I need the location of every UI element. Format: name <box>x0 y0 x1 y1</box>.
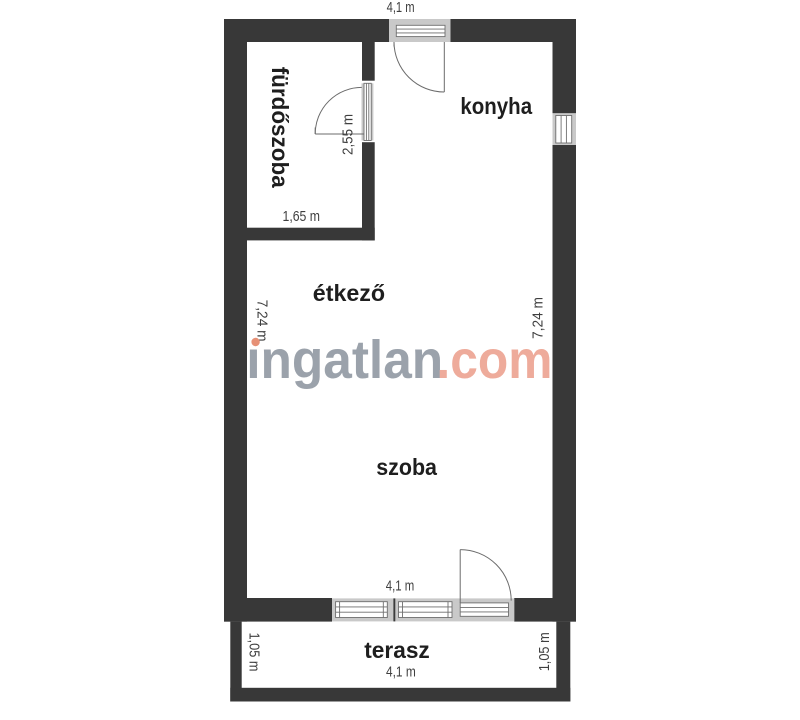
svg-text:1,05 m: 1,05 m <box>537 632 553 671</box>
svg-text:szoba: szoba <box>376 454 438 480</box>
svg-text:1,65 m: 1,65 m <box>283 209 321 225</box>
svg-text:4,1 m: 4,1 m <box>387 0 415 16</box>
svg-text:étkező: étkező <box>313 280 385 306</box>
svg-text:konyha: konyha <box>460 93 533 119</box>
svg-text:2,55 m: 2,55 m <box>340 114 356 155</box>
svg-text:1,05 m: 1,05 m <box>245 633 261 672</box>
svg-text:fürdőszoba: fürdőszoba <box>267 67 293 189</box>
svg-text:.com: .com <box>436 330 552 390</box>
svg-text:terasz: terasz <box>364 637 430 663</box>
svg-text:4,1 m: 4,1 m <box>386 579 415 595</box>
svg-text:4,1 m: 4,1 m <box>386 665 416 681</box>
svg-text:ıngatlan: ıngatlan <box>246 330 443 390</box>
